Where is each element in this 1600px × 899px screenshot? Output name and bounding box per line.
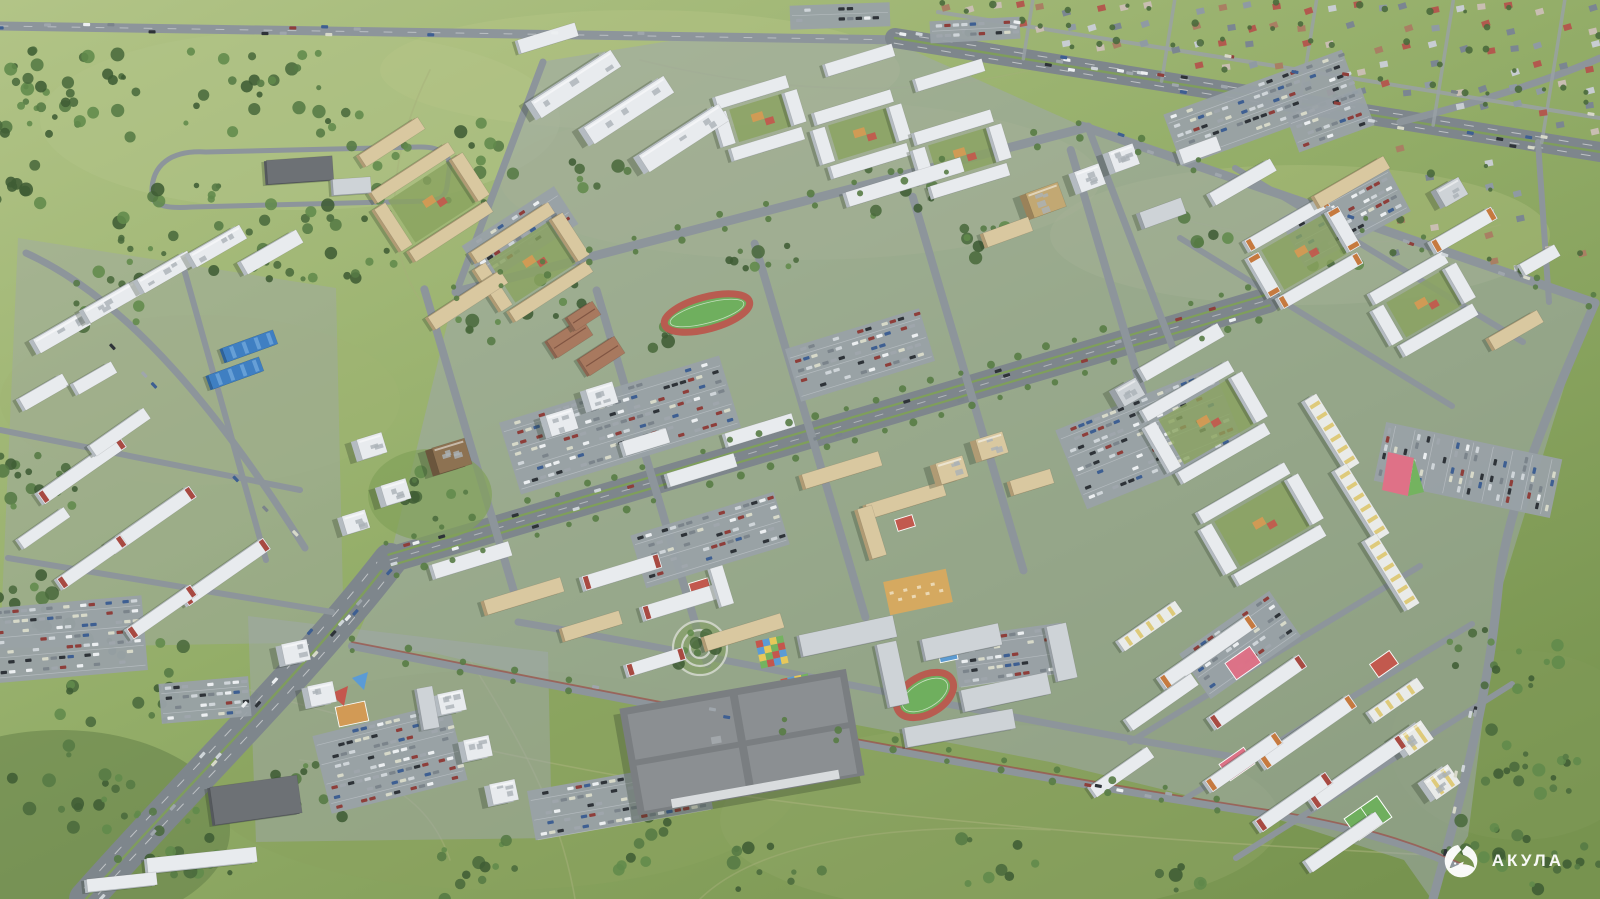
aerial-masterplan-render: АКУЛА	[0, 0, 1600, 899]
watermark: АКУЛА	[1443, 843, 1564, 879]
watermark-logo-text: АКУЛА	[1492, 851, 1564, 871]
masterplan-scene	[0, 0, 1600, 899]
shark-icon	[1443, 843, 1479, 879]
